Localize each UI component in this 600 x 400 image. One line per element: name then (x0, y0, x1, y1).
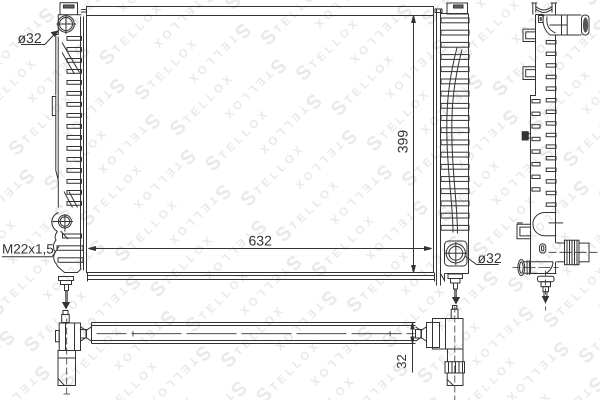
svg-text:399: 399 (395, 130, 411, 154)
svg-text:M22x1,5: M22x1,5 (2, 242, 54, 257)
svg-text:32: 32 (394, 354, 409, 368)
svg-text:632: 632 (249, 233, 273, 249)
svg-text:ø32: ø32 (18, 30, 42, 46)
svg-text:ø32: ø32 (478, 250, 502, 266)
